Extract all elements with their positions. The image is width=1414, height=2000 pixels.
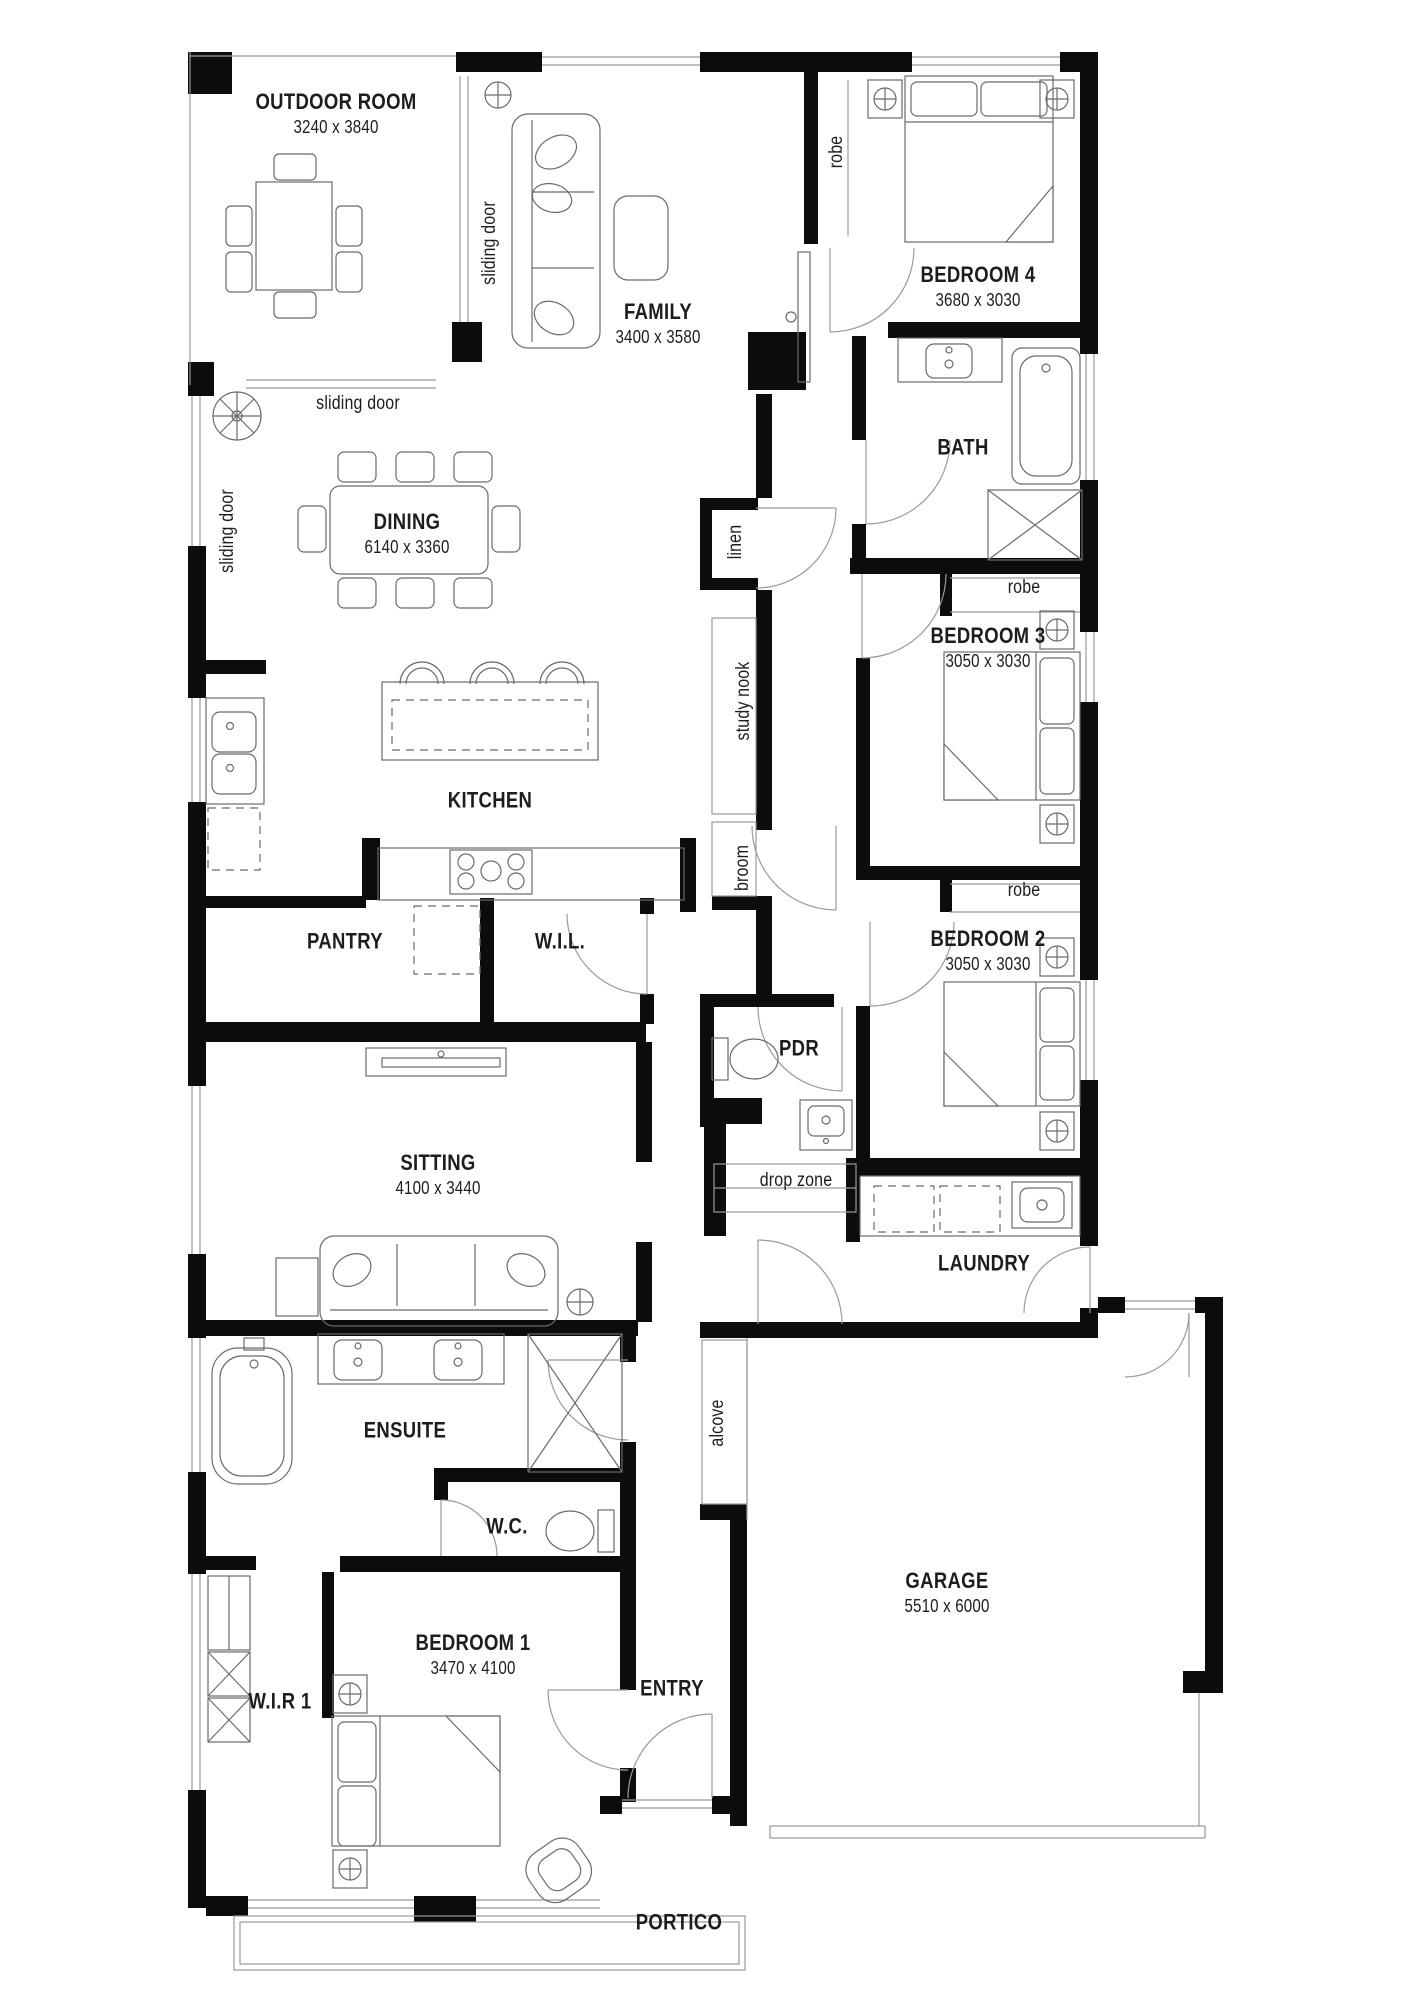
- room-label-bedroom-4: BEDROOM 4 3680 x 3030: [921, 261, 1036, 311]
- room-title: PORTICO: [636, 1908, 723, 1936]
- fixtures-wc: [546, 1510, 614, 1552]
- furniture-outdoor-room: [226, 154, 362, 318]
- room-dims: 6140 x 3360: [364, 536, 449, 559]
- room-label-bath: BATH: [937, 433, 988, 461]
- room-dims: 3680 x 3030: [921, 289, 1036, 312]
- label-linen: linen: [724, 525, 748, 560]
- room-label-pdr: PDR: [779, 1034, 819, 1062]
- room-title: ENTRY: [640, 1674, 704, 1702]
- room-label-wil: W.I.L.: [535, 927, 585, 955]
- floorplan-drawing: [0, 0, 1414, 2000]
- room-label-family: FAMILY 3400 x 3580: [615, 298, 700, 348]
- fixtures-bath: [898, 338, 1082, 560]
- room-dims: 5510 x 6000: [904, 1595, 989, 1618]
- room-dims: 4100 x 3440: [395, 1177, 480, 1200]
- label-sliding-door-family: sliding door: [478, 201, 502, 285]
- room-label-wir-1: W.I.R 1: [249, 1687, 312, 1715]
- label-robe-bedroom-2: robe: [1008, 879, 1041, 903]
- room-title: GARAGE: [904, 1567, 989, 1595]
- room-title: OUTDOOR ROOM: [255, 88, 416, 116]
- walls: [188, 52, 1223, 1922]
- room-label-kitchen: KITCHEN: [448, 786, 532, 814]
- room-title: LAUNDRY: [938, 1249, 1030, 1277]
- room-label-sitting: SITTING 4100 x 3440: [395, 1149, 480, 1199]
- room-label-portico: PORTICO: [636, 1908, 723, 1936]
- room-label-ensuite: ENSUITE: [364, 1416, 446, 1444]
- room-label-pantry: PANTRY: [307, 927, 383, 955]
- room-label-outdoor-room: OUTDOOR ROOM 3240 x 3840: [255, 88, 416, 138]
- room-title: W.C.: [486, 1512, 527, 1540]
- furniture-bedroom-1: [332, 1675, 599, 1910]
- label-robe-bedroom-4: robe: [825, 136, 849, 169]
- room-title: PDR: [779, 1034, 819, 1062]
- room-title: SITTING: [395, 1149, 480, 1177]
- room-dims: 3470 x 4100: [416, 1657, 531, 1680]
- room-label-entry: ENTRY: [640, 1674, 704, 1702]
- furniture-wir-1: [208, 1576, 250, 1742]
- room-title: BEDROOM 2: [931, 925, 1046, 953]
- fixtures-laundry: [860, 1176, 1080, 1236]
- room-label-bedroom-2: BEDROOM 2 3050 x 3030: [931, 925, 1046, 975]
- room-title: PANTRY: [307, 927, 383, 955]
- floorplan-canvas: OUTDOOR ROOM 3240 x 3840 FAMILY 3400 x 3…: [0, 0, 1414, 2000]
- room-title: W.I.L.: [535, 927, 585, 955]
- room-dims: 3050 x 3030: [931, 953, 1046, 976]
- room-title: FAMILY: [615, 298, 700, 326]
- room-title: ENSUITE: [364, 1416, 446, 1444]
- room-title: KITCHEN: [448, 786, 532, 814]
- label-alcove: alcove: [706, 1399, 730, 1446]
- label-sliding-door-dining: sliding door: [216, 489, 240, 573]
- room-label-bedroom-1: BEDROOM 1 3470 x 4100: [416, 1629, 531, 1679]
- room-label-dining: DINING 6140 x 3360: [364, 508, 449, 558]
- room-title: W.I.R 1: [249, 1687, 312, 1715]
- fixtures-ensuite: [212, 1334, 622, 1484]
- room-title: DINING: [364, 508, 449, 536]
- furniture-kitchen: [206, 662, 684, 900]
- label-sliding-door-top: sliding door: [316, 392, 400, 416]
- room-label-laundry: LAUNDRY: [938, 1249, 1030, 1277]
- room-title: BEDROOM 4: [921, 261, 1036, 289]
- label-study-nook: study nook: [732, 662, 756, 741]
- room-dims: 3240 x 3840: [255, 116, 416, 139]
- label-drop-zone: drop zone: [760, 1169, 833, 1193]
- furniture-pantry: [414, 906, 480, 974]
- room-dims: 3400 x 3580: [615, 326, 700, 349]
- room-dims: 3050 x 3030: [931, 650, 1046, 673]
- star-decoration-icon: [213, 392, 261, 440]
- furniture-bedroom-4: [868, 76, 1074, 242]
- room-title: BEDROOM 1: [416, 1629, 531, 1657]
- room-label-wc: W.C.: [486, 1512, 527, 1540]
- room-label-garage: GARAGE 5510 x 6000: [904, 1567, 989, 1617]
- room-label-bedroom-3: BEDROOM 3 3050 x 3030: [931, 622, 1046, 672]
- room-title: BATH: [937, 433, 988, 461]
- label-broom: broom: [731, 845, 755, 891]
- label-robe-bedroom-3: robe: [1008, 576, 1041, 600]
- room-title: BEDROOM 3: [931, 622, 1046, 650]
